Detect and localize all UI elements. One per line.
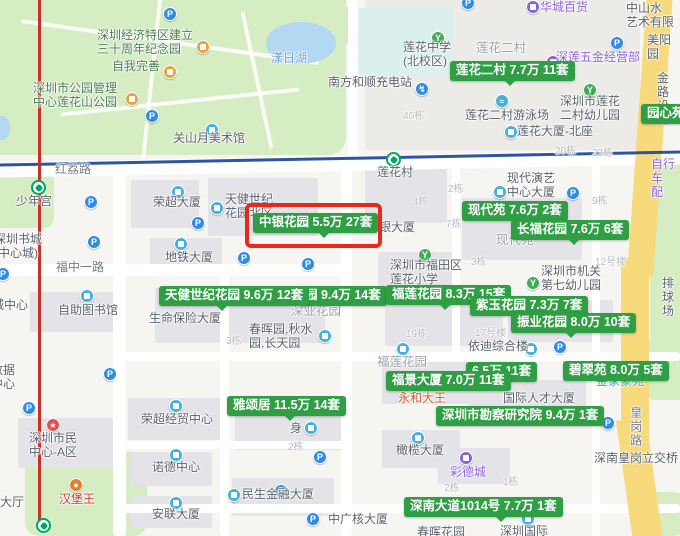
parking-icon: P [145,109,159,123]
shop-icon [526,0,540,14]
poi-label: 莲花二村 [476,41,526,55]
icon-glyph [308,425,314,431]
icon-glyph [497,189,503,195]
building-number: 3栋 [226,336,242,348]
poi-label: 美阳园 [647,34,680,62]
poi-label: 依迪综合楼 [468,340,528,354]
burger-king-icon: ● [69,478,83,492]
building-icon [396,342,410,356]
poi-label: 身 [290,422,302,436]
poi-label: 安联大厦 [152,508,200,522]
building-number: 40栋 [403,111,424,123]
metro-station-icon [31,180,46,195]
poi-label: 自我完善 [112,60,160,74]
poi-label: 漾日湖 [271,52,307,66]
metro-logo [34,183,42,191]
icon-glyph [200,44,206,50]
poi-label: 福莲花园 [377,355,427,369]
poi-label: 彩德城 [450,466,486,480]
poi-label: 永和大王 [398,392,446,406]
road-label: 红荔路 [55,163,91,177]
parking-icon: P [237,251,251,265]
road-fuzhong [0,264,345,276]
poi-label: 深圳市莲花 二村幼儿园 [560,95,620,123]
icon-glyph [173,452,179,458]
label-pointer [566,333,576,338]
label-pointer [505,81,515,86]
map-canvas[interactable]: 40栋20栋23栋2栋4栋9栋7栋3栋12号楼19栋17号楼3栋2栋1栋2栋 P… [0,0,680,536]
price-label[interactable]: 莲花二村 7.7万 11套 [450,61,575,81]
poi-label: 数据 中心 [0,364,15,392]
parking-icon: P [22,401,36,415]
building-icon [318,329,332,343]
icon-glyph [525,516,531,522]
icon-glyph [530,4,536,10]
road-h3 [113,441,345,449]
park-poi-icon [163,65,177,79]
poi-label: 深圳书城 (中心城) [0,233,42,261]
poi-label: 深圳经济特区建立 三十周年纪念园 [97,29,193,57]
metro-logo [389,155,397,163]
label-pointer [440,305,450,310]
price-label[interactable]: 长福花园 7.6万 6套 [511,220,629,240]
label-pointer [285,416,295,421]
price-label-highlighted[interactable]: 中银花园 5.5万 27套 [253,213,378,233]
poi-label: 中山水 艺术有限 [626,2,674,30]
building-number: 2栋 [448,184,464,196]
building-number: 17号楼 [475,328,506,340]
poi-label: 深业花园 [291,304,341,318]
poi-label: 深南皇岗立交桥 [594,452,678,466]
poi-label: 自行车 配 [651,158,680,199]
icon-glyph [508,129,514,135]
poi-label: 大厅 [0,496,24,510]
icon-glyph [167,69,173,75]
parking-icon: P [553,340,567,354]
poi-label: 诺德中心 [152,461,200,475]
poi-label: 少年宫 [16,195,52,209]
building-icon [493,185,507,199]
civic-center-icon: ★ [46,418,60,432]
building-number: 20栋 [555,146,576,158]
price-label[interactable]: 天健世纪花园 9.6万 12套 [159,286,309,306]
parking-icon: P [191,216,205,230]
icon-glyph [178,241,184,247]
building-number: 7栋 [446,219,462,231]
road-v1 [113,163,126,536]
icon-glyph [231,492,237,498]
icon-glyph [322,333,328,339]
price-label[interactable]: 福景大厦 7.0万 11套 [386,371,511,391]
park-poi-icon [196,40,210,54]
poi-label: 国际人才大厦 [503,392,575,406]
price-label[interactable]: 园 9.4万 14套 [299,286,387,306]
building-number: 9栋 [592,196,608,208]
poi-label: 深圳市机关 第七幼儿园 [541,265,601,293]
charging-station-icon: ↯ [415,82,429,96]
school-icon: Y [526,276,540,290]
parking-icon: P [163,7,177,21]
building-icon [80,289,94,303]
label-pointer [496,517,506,522]
parking-icon: P [103,367,117,381]
price-label[interactable]: 碧翠苑 8.0万 5套 [563,361,669,381]
label-pointer [319,233,329,238]
label-pointer [217,306,227,311]
building-icon [227,488,241,502]
metro-logo [39,521,47,529]
parking-icon: P [0,267,10,281]
building-icon [504,125,518,139]
poi-label: 春晖园,秋水 园,长天园 [249,323,312,351]
poi-label: 莲花二村游泳场 [465,109,549,123]
parking-icon: P [313,450,327,464]
price-label[interactable]: 雅颂居 11.5万 14套 [227,396,346,416]
icon-glyph [528,346,534,352]
shop-icon [459,451,473,465]
poi-label: 深圳市民 中心-A区 [29,432,77,460]
poi-label: 深圳市公园管理 中心莲花山公园 [33,82,117,110]
poi-label: 中广核大厦 [328,513,388,527]
price-label[interactable]: 现代苑 7.6万 2套 [462,201,568,221]
icon-glyph [214,205,220,211]
icon-glyph [173,403,179,409]
poi-label: 自助图书馆 [58,304,118,318]
poi-label: 深圳市福田区 莲花小学 [390,259,462,287]
price-label[interactable]: 振业花园 8.0万 10套 [511,313,636,333]
swimming-pool-icon: ≈ [495,94,509,108]
road-label: 福中一路 [56,261,104,275]
icon-glyph [129,96,135,102]
building-icon [174,237,188,251]
icon-glyph [84,293,90,299]
building-icon [210,201,224,215]
parking-icon: P [301,257,315,271]
parking-icon: P [306,512,320,526]
building-number: 3栋 [471,257,487,269]
building-number: 2栋 [444,483,460,495]
poi-label: 现代演艺 中心大厦 [507,172,555,200]
metro-station-icon [36,518,51,533]
parking-icon: P [87,235,101,249]
poi-label: 生命保险大厦 [149,312,221,326]
poi-label: 荣超大厦 [153,196,201,210]
road-v6 [592,163,600,536]
building-icon [304,421,318,435]
label-pointer [569,240,579,245]
price-label[interactable]: 深南大道1014号 7.7万 1套 [404,497,563,517]
poi-label: 莲花中学 (北校区) [403,41,451,69]
park-poi-icon [125,92,139,106]
building-number: 2栋 [288,442,304,454]
poi-label: 汉堡王 [59,493,95,507]
building-number: 19栋 [406,329,427,341]
building-number: 1栋 [503,477,519,489]
icon-glyph [463,455,469,461]
poi-label: 南方和顺充电站 [328,76,412,90]
building-number: 23栋 [592,148,613,160]
poi-label: 华城百货 [540,1,588,15]
poi-label: 城中心 [0,299,28,313]
poi-label: 深圳国际 [500,525,548,536]
poi-label: 莲花大厦-北座 [517,125,593,139]
poi-label: 地铁大厦 [165,251,213,265]
road-label: 皇岗路 [628,406,642,448]
parking-icon: P [610,36,624,50]
poi-label: 荣超经贸中心 [141,413,213,427]
poi-label: 橄榄大厦 [396,444,444,458]
parking-icon: P [84,195,98,209]
parking-icon: P [566,186,580,200]
icon-glyph [415,435,421,441]
poi-label: 关山月美术馆 [173,132,245,146]
price-label[interactable]: 深圳市勘察研究院 9.4万 1套 [436,406,604,426]
poi-label: 排球场 [662,277,680,318]
poi-label: 春晖花园 [417,526,465,536]
icon-glyph [400,346,406,352]
building-number: 4栋 [413,197,429,209]
poi-label: 民生金融大厦 [242,488,314,502]
icon-glyph [173,500,179,506]
price-label[interactable]: 园心苑 [641,104,680,124]
building-icon [169,399,183,413]
poi-label: 莲花村 [377,166,413,180]
